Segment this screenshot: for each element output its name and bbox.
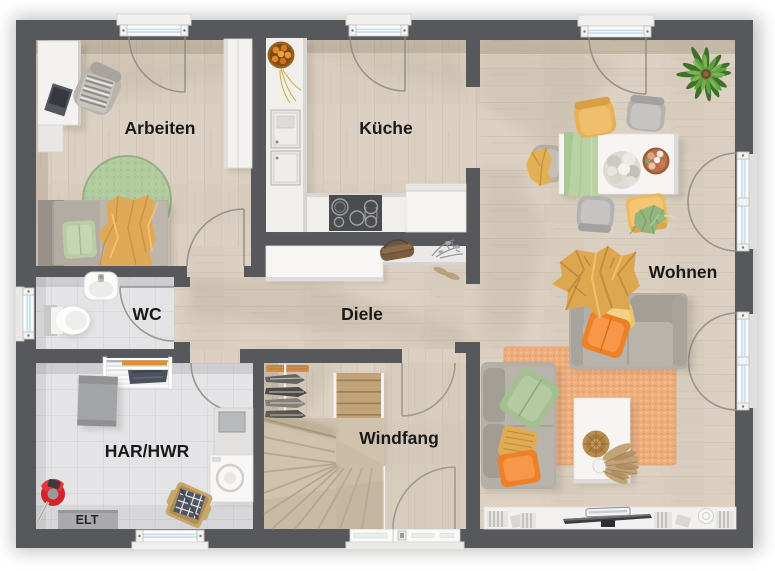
svg-text:Diele: Diele <box>341 304 383 324</box>
svg-text:ELT: ELT <box>76 513 99 527</box>
svg-text:WC: WC <box>132 304 162 324</box>
svg-text:Wohnen: Wohnen <box>649 262 718 282</box>
svg-text:Küche: Küche <box>359 118 413 138</box>
svg-text:HAR/HWR: HAR/HWR <box>105 441 190 461</box>
svg-text:Windfang: Windfang <box>359 428 439 448</box>
svg-text:Arbeiten: Arbeiten <box>125 118 196 138</box>
